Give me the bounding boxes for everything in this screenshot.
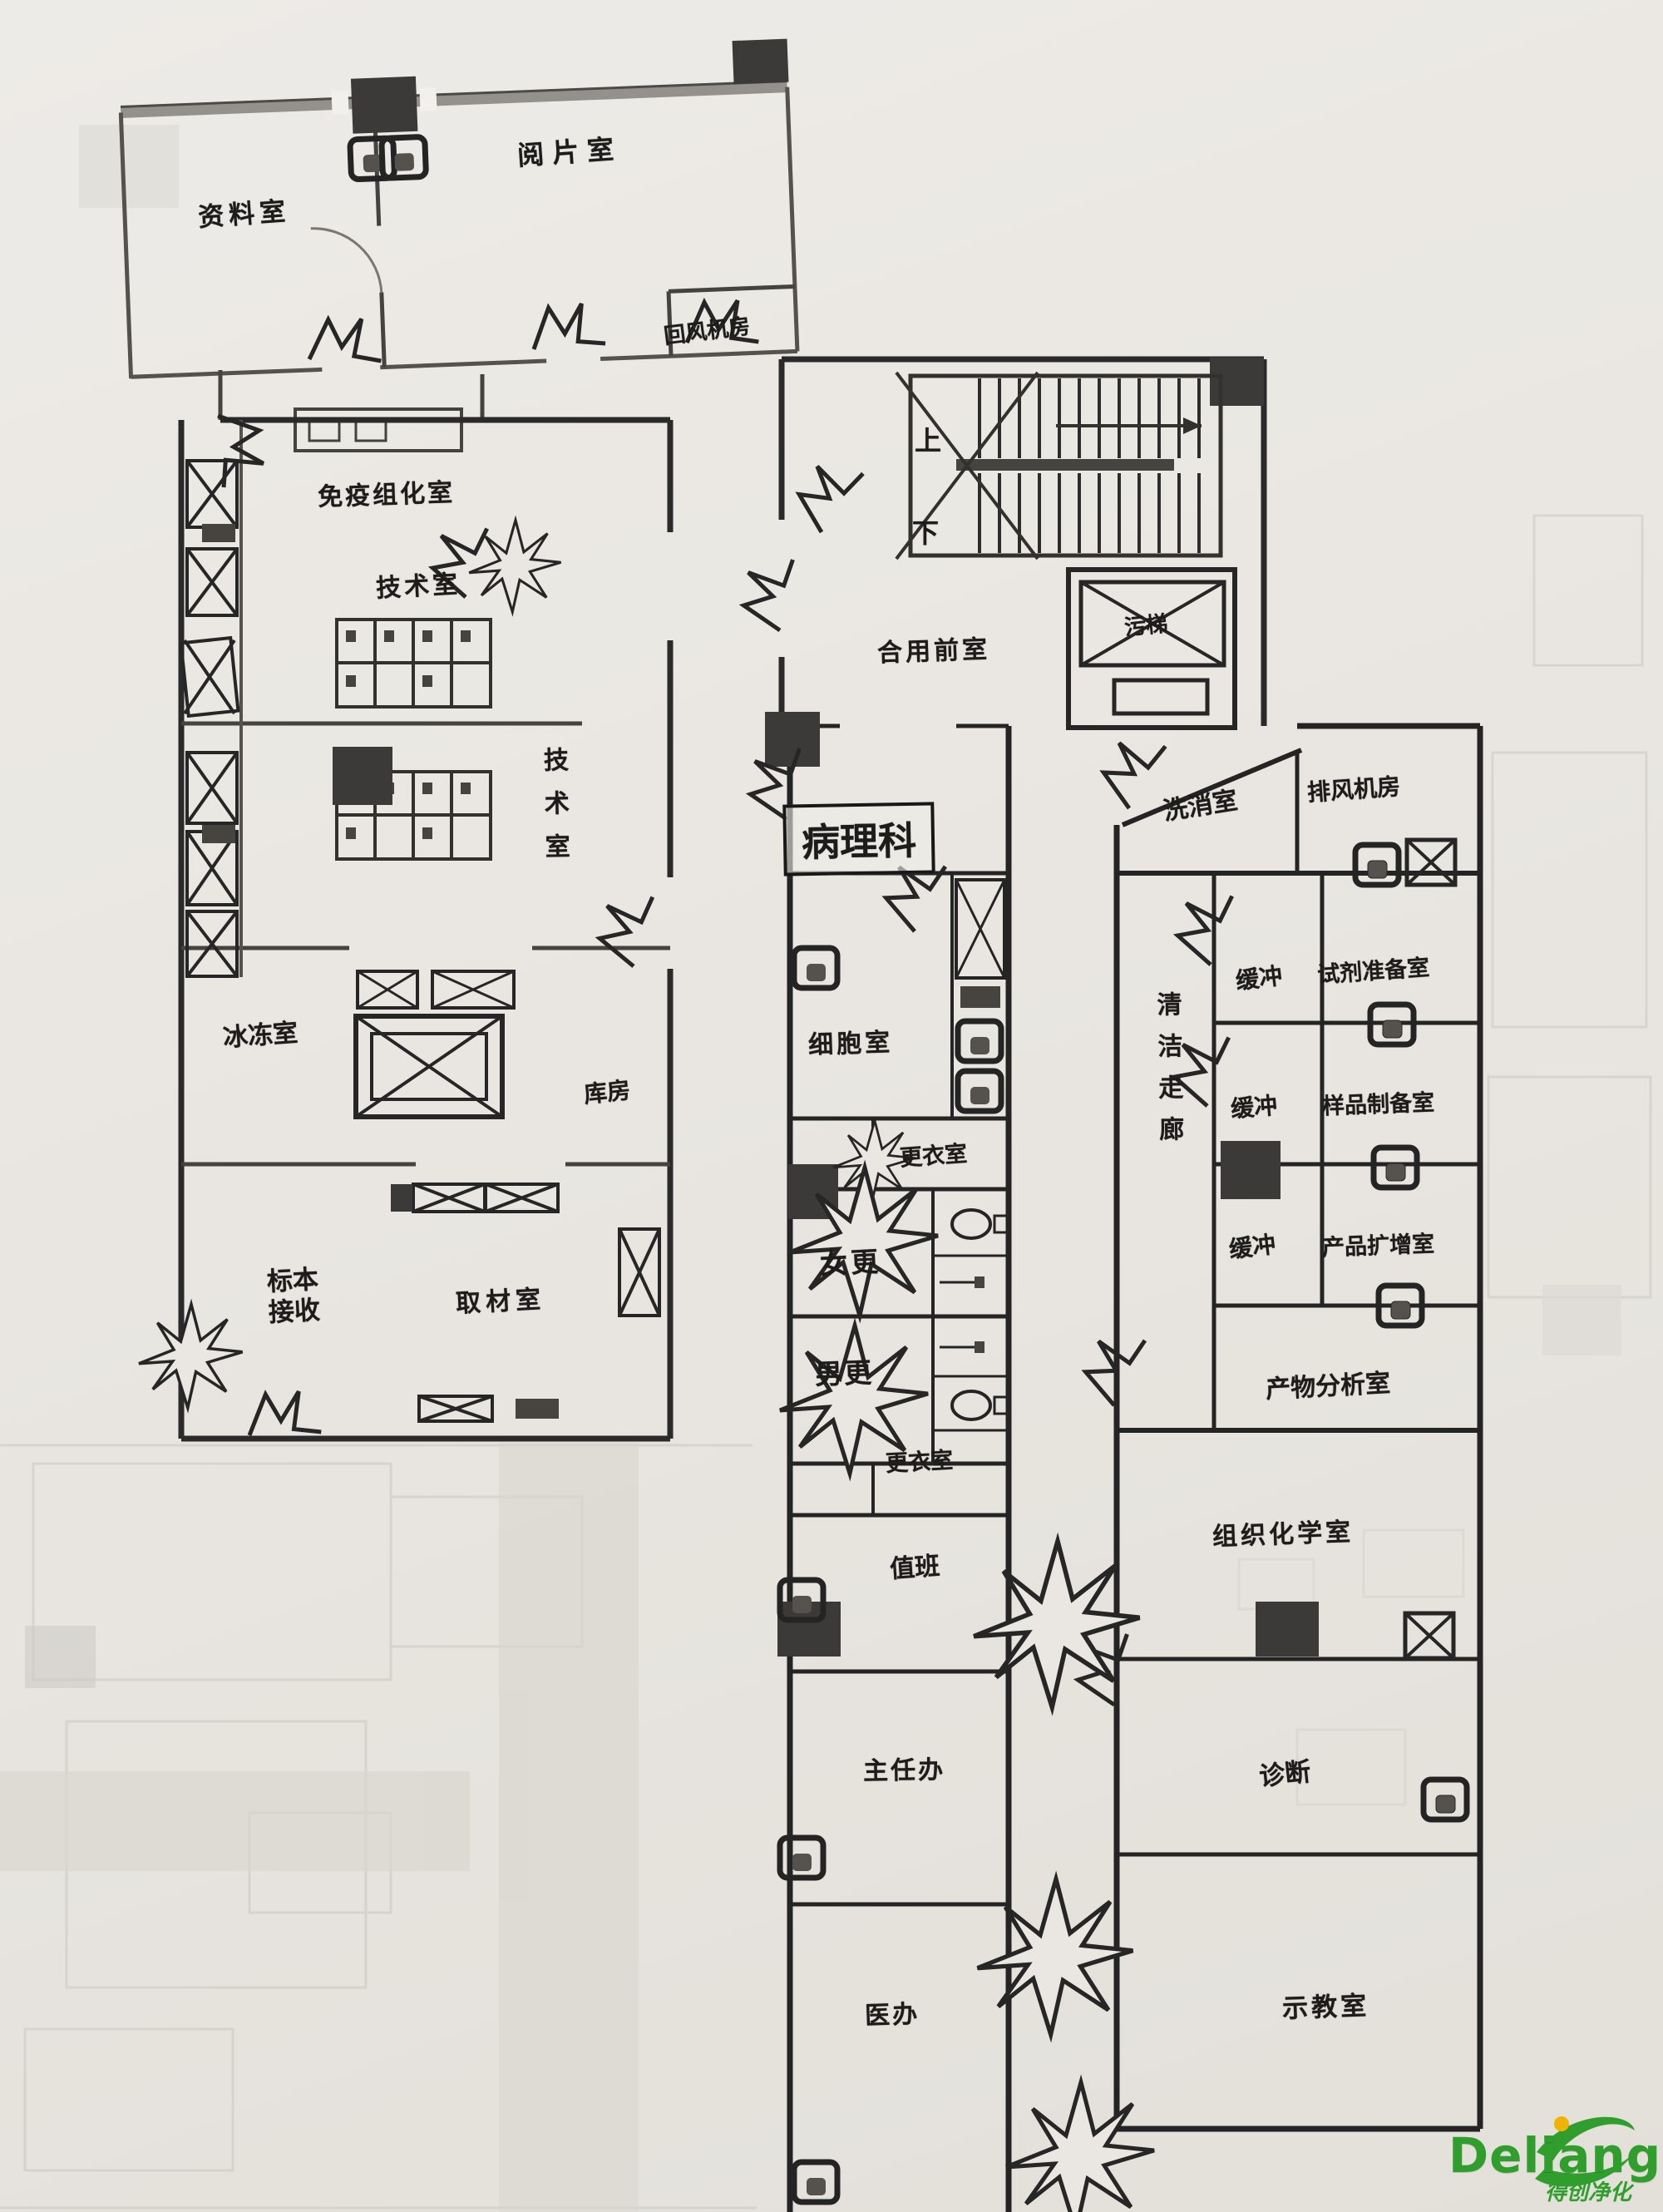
room-label-changing-bottom: 更衣室: [885, 1442, 954, 1478]
floor-plan-photo: 资料室 阅片室 回风机房 合用前室 污梯 上 下 病理科 免疫组化室 技术室 技…: [0, 0, 1663, 2212]
room-label-dirty-elevator: 污梯: [1123, 606, 1169, 641]
room-label-changing-top: 更衣室: [899, 1135, 969, 1173]
department-title: 病理科: [782, 802, 935, 876]
room-label-immuno: 免疫组化室: [317, 472, 455, 513]
room-label-storage: 库房: [582, 1072, 632, 1110]
room-label-product-analysis: 产物分析室: [1265, 1362, 1391, 1405]
room-label-histochemistry: 组织化学室: [1211, 1511, 1354, 1553]
room-label-amplification: 产品扩增室: [1321, 1226, 1434, 1262]
room-label-buffer-3: 缓冲: [1227, 1227, 1277, 1266]
stair-treads-upper: [969, 378, 1214, 458]
room-label-female-changing: 女更: [819, 1239, 882, 1282]
stair-treads-lower: [969, 473, 1214, 553]
left-shaft-boxes: [181, 461, 239, 976]
room-label-cytology: 细胞室: [807, 1021, 893, 1061]
stair-block: [782, 358, 1264, 726]
room-label-buffer-2: 缓冲: [1229, 1088, 1278, 1125]
room-label-diagnosis: 诊断: [1257, 1750, 1312, 1793]
room-label-archive: 资料室: [197, 190, 292, 234]
corridor-label-clean: 清洁走廊: [1147, 991, 1187, 1158]
room-label-tech-2: 技术室: [535, 747, 574, 877]
dirty-elevator-shaft: [1068, 570, 1235, 728]
room-label-doctor-office: 医办: [864, 1993, 920, 2032]
room-label-tech-1: 技术室: [375, 563, 461, 604]
room-label-film-reading: 阅片室: [516, 128, 624, 174]
room-label-grossing: 取材室: [455, 1278, 546, 1320]
room-label-shared-lobby: 合用前室: [876, 629, 990, 669]
room-label-director-office: 主任办: [863, 1749, 946, 1787]
elevator-bank: [333, 747, 514, 1117]
room-label-teaching: 示教室: [1281, 1984, 1370, 2025]
room-label-exhaust-fan: 排风机房: [1306, 768, 1402, 808]
room-label-frozen: 冰冻室: [222, 1012, 299, 1054]
stair-label-down: 下: [912, 512, 939, 551]
watermark-caption: 得创净化: [1545, 2175, 1631, 2206]
room-label-male-changing: 男更: [814, 1350, 874, 1392]
stair-label-up: 上: [915, 420, 941, 458]
room-label-duty: 值班: [889, 1545, 941, 1585]
right-column-walls: [1117, 726, 1480, 2129]
room-label-sample-prep: 样品制备室: [1321, 1084, 1434, 1121]
room-label-specimen-receiving: 标本接收: [266, 1264, 329, 1329]
connector-walls: [220, 370, 482, 451]
middle-column-features: [765, 712, 1001, 2202]
room-label-buffer-1: 缓冲: [1234, 958, 1284, 997]
lab-benches: [337, 620, 491, 859]
